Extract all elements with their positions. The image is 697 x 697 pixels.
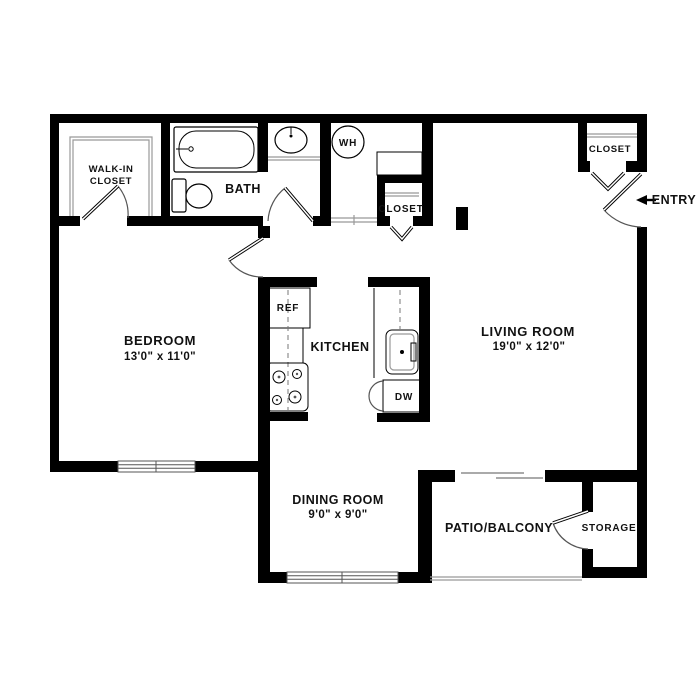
bathroom-sink: [268, 127, 320, 160]
floor-plan: WALK-IN CLOSET BATH WH CLOSET CLOSET ENT…: [0, 0, 697, 697]
stove: [266, 363, 308, 411]
wall: [50, 114, 647, 123]
dishwasher-label: DW: [395, 392, 413, 403]
living-room-label: LIVING ROOM: [481, 324, 575, 339]
wall: [637, 114, 647, 172]
bedroom-window: [118, 461, 195, 472]
wall: [258, 226, 270, 238]
walk-in-closet-door: [83, 186, 128, 219]
wall: [582, 470, 593, 512]
sliding-glass-door: [461, 473, 543, 478]
living-room-dims: 19'0" x 12'0": [493, 341, 566, 353]
wall: [313, 216, 331, 226]
patio-label: PATIO/BALCONY: [445, 521, 553, 535]
wall: [127, 216, 263, 226]
kitchen-label: KITCHEN: [310, 340, 369, 354]
wall: [582, 549, 593, 578]
bath-label: BATH: [225, 182, 261, 196]
wall: [320, 123, 331, 216]
entry-door: [604, 174, 641, 227]
entry-label: ENTRY: [652, 193, 697, 207]
entry-closet-shelf: [587, 134, 637, 137]
wall: [377, 413, 430, 422]
wall: [50, 114, 59, 472]
entry-closet-label: CLOSET: [589, 144, 631, 155]
wall: [637, 227, 647, 578]
bedroom-door: [229, 238, 263, 277]
toilet: [172, 179, 212, 212]
hall-closet-label: CLOSET: [378, 204, 423, 215]
bathtub: [174, 127, 258, 172]
dining-room-dims: 9'0" x 9'0": [308, 509, 367, 521]
wall: [50, 461, 118, 472]
entry-closet-bifold-door: [592, 173, 624, 189]
dining-room-label: DINING ROOM: [292, 493, 384, 507]
storage-label: STORAGE: [582, 523, 637, 534]
wall: [262, 277, 317, 287]
bedroom-label: BEDROOM: [124, 333, 196, 348]
refrigerator-label: REF: [277, 303, 299, 314]
wall: [258, 572, 287, 583]
bath-door: [268, 188, 313, 221]
wall: [258, 412, 308, 421]
patio-railing: [430, 577, 582, 580]
wall: [418, 470, 432, 583]
water-heater-label: WH: [339, 138, 357, 149]
wall: [258, 123, 268, 172]
dining-window: [287, 572, 398, 583]
wall-stub: [456, 207, 468, 230]
wall: [377, 175, 385, 226]
wall: [59, 216, 80, 226]
wall: [258, 277, 270, 583]
wall: [578, 161, 590, 172]
bedroom-dims: 13'0" x 11'0": [124, 351, 196, 363]
wall: [161, 123, 170, 216]
wall: [419, 277, 430, 422]
utility-opening: [331, 215, 377, 225]
floor-plan-canvas: WALK-IN CLOSET BATH WH CLOSET CLOSET ENT…: [0, 0, 697, 697]
kitchen-sink: [386, 330, 418, 374]
wall: [626, 161, 637, 172]
hall-closet-bifold-door: [391, 227, 412, 239]
walk-in-closet-label-line2: CLOSET: [90, 176, 132, 187]
walk-in-closet-label-line1: WALK-IN: [89, 164, 134, 175]
